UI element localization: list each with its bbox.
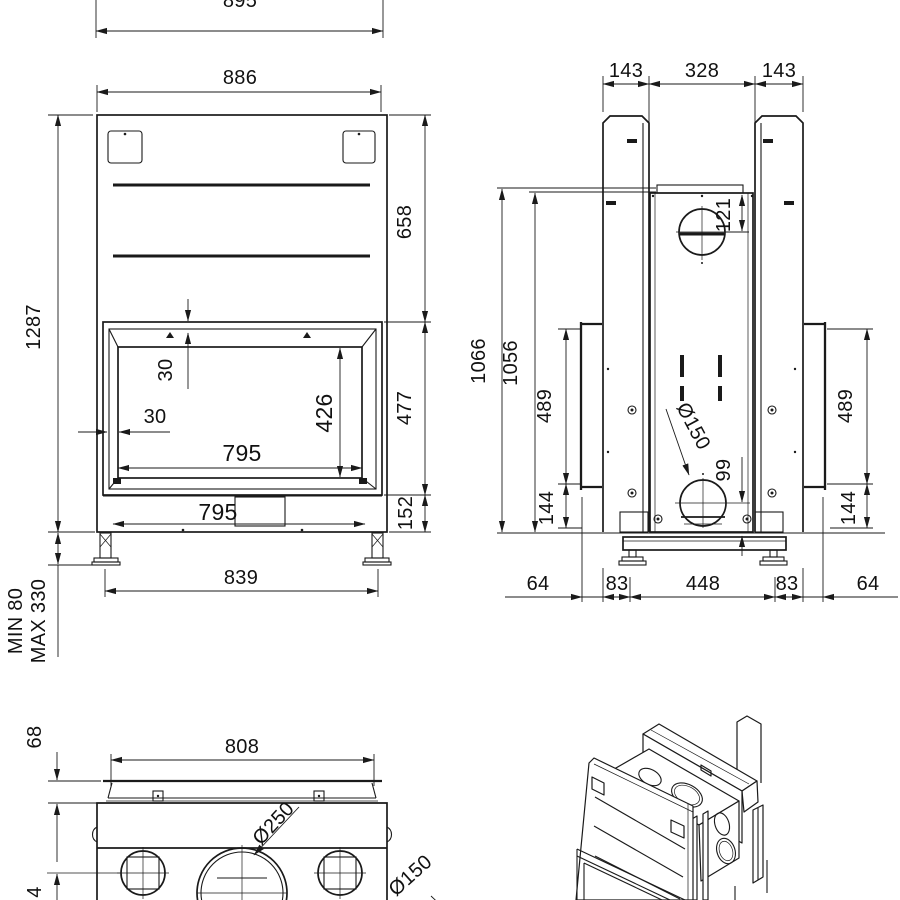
dim-front-glass-height: 426 — [311, 393, 337, 432]
glass-clip-right — [303, 332, 311, 338]
dim-rear-chain-1: 64 — [527, 573, 550, 595]
dim-rear-duct-right: 143 — [762, 60, 796, 82]
plinth-panel — [235, 497, 285, 526]
rear-dim-heights: 1066 1056 — [468, 189, 535, 532]
front-plinth: 795 — [103, 496, 382, 531]
front-legs — [92, 533, 391, 565]
top-view: 68 808 — [24, 726, 449, 900]
dim-rear-flue-diameter: Ø150 — [672, 399, 715, 454]
top-dim-collar: 68 — [24, 726, 101, 862]
dim-front-glass-width: 795 — [222, 440, 261, 466]
rear-top-plate — [657, 185, 743, 193]
top-dim-width: 808 — [111, 736, 374, 786]
front-dim-height: 1287 — [23, 115, 95, 532]
dim-leg-max: MAX 330 — [28, 579, 50, 663]
front-louver-slots — [113, 185, 370, 256]
rear-label-flue-diameter: Ø150 — [666, 399, 715, 475]
top-outlet-center — [197, 845, 287, 900]
dim-front-opening-height: 477 — [394, 391, 416, 425]
rear-dim-panel-right: 489 144 — [827, 329, 873, 528]
technical-drawing: 895 886 — [0, 0, 900, 900]
dim-rear-chain-5: 64 — [857, 573, 880, 595]
rear-dim-top-chain: 143 328 143 — [603, 60, 803, 186]
latch-right — [343, 131, 375, 163]
rear-post-left — [603, 116, 649, 532]
top-label-center-outlet: Ø250 — [249, 798, 299, 855]
dim-top-partial: 4 — [24, 886, 46, 897]
dim-rear-duct-left: 143 — [609, 60, 643, 82]
dim-rear-height-outer: 1066 — [468, 338, 490, 384]
front-dim-feet: 839 — [105, 567, 378, 597]
dim-rear-flue-height: 99 — [713, 459, 735, 482]
dim-rear-base-right: 144 — [838, 491, 860, 525]
dim-rear-duct-center: 328 — [685, 60, 719, 82]
front-dim-inset-side: 30 — [78, 406, 170, 432]
dim-rear-chain-3: 448 — [686, 573, 720, 595]
rear-side-panel-right — [804, 322, 825, 490]
top-outlet-left — [117, 847, 169, 899]
rear-dim-panel-left: 489 144 — [534, 329, 582, 528]
dim-top-width: 808 — [225, 736, 259, 758]
front-dim-overall-width: 895 — [96, 0, 383, 38]
dim-rear-chain-2: 83 — [606, 573, 629, 595]
dim-rear-base-left: 144 — [536, 491, 558, 525]
latch-left — [108, 131, 142, 163]
dim-front-inset-side: 30 — [144, 406, 167, 428]
iso-rail-2 — [703, 811, 708, 900]
dim-top-outlet-side: Ø150 — [385, 851, 437, 900]
front-dim-inset-top: 30 — [155, 299, 188, 389]
front-dim-width: 886 — [97, 67, 381, 112]
dim-front-height: 1287 — [23, 304, 45, 350]
dim-leg-min: MIN 80 — [5, 588, 27, 654]
dim-front-inset-top: 30 — [155, 359, 177, 382]
dim-front-feet-spacing: 839 — [224, 567, 258, 589]
rear-dim-flue-offset: 121 — [713, 195, 749, 232]
top-dim-partial: 4 — [24, 873, 120, 900]
dim-front-base-height: 152 — [395, 496, 417, 530]
rear-body — [650, 193, 753, 532]
dim-rear-panel-left: 489 — [534, 389, 556, 423]
dim-front-upper-height: 658 — [394, 205, 416, 239]
dim-front-base-width: 795 — [198, 499, 237, 525]
top-label-side-outlet: Ø150 — [385, 851, 449, 900]
drawing-sheet: 895 886 — [0, 0, 900, 900]
front-top-latches — [108, 131, 375, 163]
dim-rear-flue-offset: 121 — [713, 198, 735, 232]
dim-front-width: 886 — [223, 67, 257, 89]
dim-rear-chain-4: 83 — [776, 573, 799, 595]
rear-post-right — [755, 116, 803, 532]
dim-rear-height-inner: 1056 — [500, 340, 522, 386]
front-dim-right-chain: 658 477 152 — [384, 115, 431, 532]
front-dim-leg-range: MIN 80 MAX 330 — [5, 533, 92, 663]
top-plate — [103, 781, 382, 801]
glass-clip-left — [166, 332, 174, 338]
front-body-outline — [97, 115, 387, 532]
isometric-view — [576, 716, 767, 900]
dim-front-overall-width: 895 — [223, 0, 257, 12]
front-view: 895 886 — [5, 0, 431, 663]
top-outlet-right — [314, 847, 366, 899]
rear-view: 143 328 143 — [468, 60, 898, 602]
rear-vent-slots — [680, 355, 722, 401]
dim-rear-panel-right: 489 — [835, 389, 857, 423]
dim-top-collar-height: 68 — [24, 726, 46, 749]
front-dim-glass-width: 795 — [118, 440, 362, 468]
rear-side-panel-left — [581, 322, 602, 490]
dim-top-outlet-center: Ø250 — [249, 798, 299, 850]
front-dim-glass-height: 426 — [311, 348, 340, 477]
